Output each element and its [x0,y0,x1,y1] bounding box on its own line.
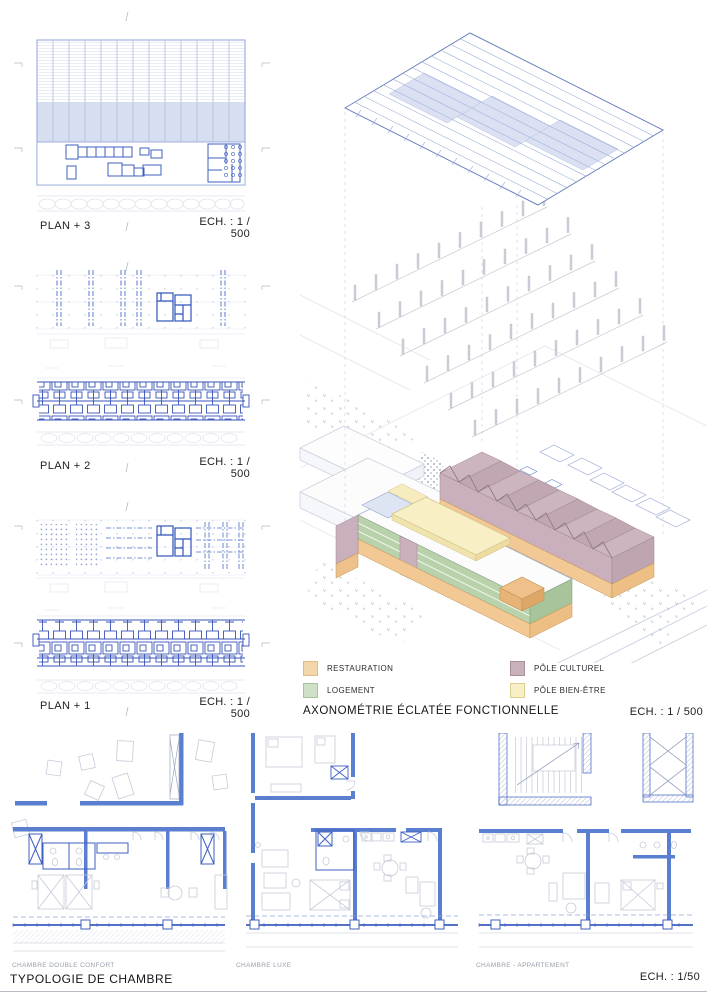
plan-3-label: PLAN + 3 [40,220,91,232]
plan-1-label: PLAN + 1 [40,700,91,712]
plan-1-drawing [0,488,295,720]
corridor-furniture [11,740,228,838]
axon-scale: ECH. : 1 / 500 [600,706,703,718]
facade [13,920,225,929]
staircase [499,733,591,805]
plan2-partitions [57,270,225,326]
axonometric-drawing [295,18,707,663]
legend-item-restauration: RESTAURATION [303,661,393,676]
facade [479,920,693,929]
pole-bien-etre-label: PÔLE BIEN-ÊTRE [534,686,606,695]
presentation-board: PLAN + 3 ECH. : 1 / 500 [0,0,707,1000]
plan-2-label: PLAN + 2 [40,460,91,472]
plan-1-scale: ECH. : 1 / 500 [185,696,250,720]
restauration-label: RESTAURATION [327,664,393,673]
fixtures-furniture [483,834,677,913]
plan-1-caption-row: PLAN + 1 ECH. : 1 / 500 [40,696,250,714]
plan1-rooms-band [39,620,243,666]
logement-label: LOGEMENT [327,686,375,695]
legend-item-logement: LOGEMENT [303,683,375,698]
typology-scale: ECH. : 1/50 [600,971,700,983]
chambre-luxe-drawing [238,733,466,959]
facade [246,920,458,929]
plan-3-caption-row: PLAN + 3 ECH. : 1 / 500 [40,216,250,234]
legend-item-pole-bien-etre: PÔLE BIEN-ÊTRE [510,683,606,698]
pole-culturel-label: PÔLE CULTUREL [534,664,604,673]
bathroom-pod [316,830,354,870]
plan-2-caption-row: PLAN + 2 ECH. : 1 / 500 [40,456,250,474]
pole-culturel-swatch [510,661,525,676]
chambre-appartement-drawing [471,733,699,959]
bedroom-furniture [266,736,335,792]
typology-title: TYPOLOGIE DE CHAMBRE [10,972,173,986]
bottom-rule [0,991,707,992]
chambre-double-confort-drawing [5,733,233,959]
plan-2-drawing [0,248,295,476]
caption-chambre-appartement: CHAMBRE - APPARTEMENT [476,962,569,969]
plan-3-drawing [0,8,295,240]
legend-item-pole-culturel: PÔLE CULTUREL [510,661,604,676]
pole-bien-etre-swatch [510,683,525,698]
fixtures-furniture [256,833,436,918]
caption-chambre-luxe: CHAMBRE LUXE [236,962,292,969]
axon-title: AXONOMÉTRIE ÉCLATÉE FONCTIONNELLE [303,705,559,717]
walls [13,733,227,889]
plan-3-scale: ECH. : 1 / 500 [185,216,250,240]
post-grid-layer [352,191,667,438]
plan-2-scale: ECH. : 1 / 500 [185,456,250,480]
logement-swatch [303,683,318,698]
plan2-core [157,293,191,321]
plan3-arcade [37,196,245,211]
roof-plane [345,33,663,205]
caption-chambre-double-confort: CHAMBRE DOUBLE CONFORT [12,962,115,969]
shaft [643,733,693,802]
plan1-terrace-dots [40,524,68,568]
walls [251,733,442,923]
terrace-band [13,930,225,943]
restauration-swatch [303,661,318,676]
plan1-core [157,526,191,556]
fixtures-furniture [32,848,227,909]
bathroom-pod [29,834,214,869]
